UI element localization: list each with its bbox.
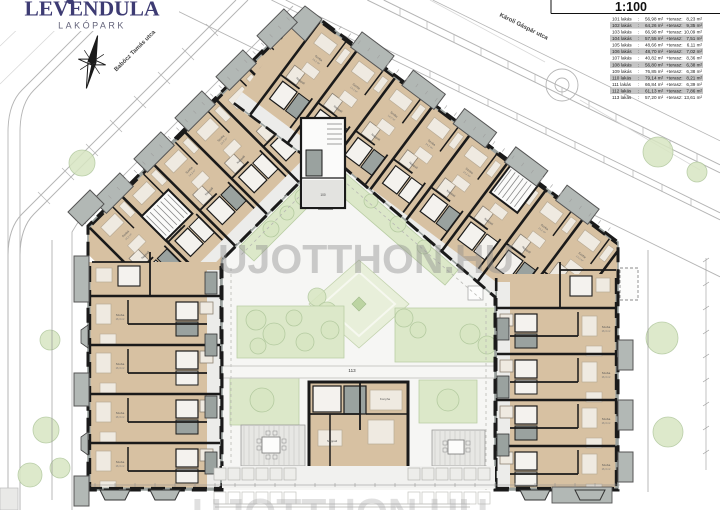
svg-text::: : xyxy=(638,82,639,87)
svg-text:Szoba: Szoba xyxy=(116,411,125,415)
svg-text:+terasz:: +terasz: xyxy=(666,62,682,67)
svg-text:8,23 m²: 8,23 m² xyxy=(686,16,702,21)
svg-text:7,02 m²: 7,02 m² xyxy=(686,49,702,54)
svg-text:6,38 m²: 6,38 m² xyxy=(686,62,702,67)
svg-text:48,66 m²: 48,66 m² xyxy=(645,43,664,48)
svg-text:16,3 m²: 16,3 m² xyxy=(116,415,125,419)
svg-text:9,35 m²: 9,35 m² xyxy=(686,23,702,28)
svg-text::: : xyxy=(638,95,639,100)
svg-text:UJOTTHON.HU: UJOTTHON.HU xyxy=(218,236,514,282)
svg-text::: : xyxy=(638,89,639,94)
svg-text:113: 113 xyxy=(348,368,356,373)
svg-text:8,21 m²: 8,21 m² xyxy=(686,75,702,80)
svg-text:+terasz:: +terasz: xyxy=(666,69,682,74)
svg-text:+terasz:: +terasz: xyxy=(666,82,682,87)
svg-text:66,84 m²: 66,84 m² xyxy=(645,82,664,87)
svg-text:107 lakás: 107 lakás xyxy=(612,56,632,61)
svg-text:111 lakás: 111 lakás xyxy=(612,82,632,87)
svg-text:+terasz:: +terasz: xyxy=(666,95,682,100)
svg-text:108 lakás: 108 lakás xyxy=(612,62,632,67)
svg-text:100: 100 xyxy=(320,193,326,197)
svg-text:102 lakás: 102 lakás xyxy=(612,23,632,28)
svg-text:Nappali: Nappali xyxy=(327,439,338,443)
svg-text:105 lakás: 105 lakás xyxy=(612,43,632,48)
svg-text:Szoba: Szoba xyxy=(602,463,611,467)
svg-text:101 lakás: 101 lakás xyxy=(612,16,632,21)
svg-text::: : xyxy=(638,69,639,74)
svg-text:103 lakás: 103 lakás xyxy=(612,30,632,35)
svg-text:+terasz:: +terasz: xyxy=(666,30,682,35)
svg-text::: : xyxy=(638,56,639,61)
svg-text:40,82 m²: 40,82 m² xyxy=(645,56,664,61)
svg-text:+terasz:: +terasz: xyxy=(666,56,682,61)
svg-text:+terasz:: +terasz: xyxy=(666,16,682,21)
svg-text:104 lakás: 104 lakás xyxy=(612,36,632,41)
svg-text:6,39 m²: 6,39 m² xyxy=(686,82,702,87)
svg-text:48,70 m²: 48,70 m² xyxy=(645,49,664,54)
svg-text:61,13 m²: 61,13 m² xyxy=(645,89,664,94)
svg-text:13,61 m²: 13,61 m² xyxy=(684,95,703,100)
svg-text:Szoba: Szoba xyxy=(116,460,125,464)
svg-text:16,3 m²: 16,3 m² xyxy=(602,329,611,333)
svg-text:Szoba: Szoba xyxy=(116,362,125,366)
svg-text:+terasz:: +terasz: xyxy=(666,89,682,94)
svg-text:16,3 m²: 16,3 m² xyxy=(602,467,611,471)
svg-text:+terasz:: +terasz: xyxy=(666,23,682,28)
svg-text:16,3 m²: 16,3 m² xyxy=(116,366,125,370)
svg-text:+terasz:: +terasz: xyxy=(666,36,682,41)
svg-text:7,51 m²: 7,51 m² xyxy=(686,36,702,41)
svg-text:106 lakás: 106 lakás xyxy=(612,49,632,54)
svg-text:Szoba: Szoba xyxy=(116,313,125,317)
svg-text::: : xyxy=(638,49,639,54)
svg-text:Szoba: Szoba xyxy=(602,417,611,421)
svg-text:+terasz:: +terasz: xyxy=(666,49,682,54)
svg-text:76,85 m²: 76,85 m² xyxy=(645,69,664,74)
svg-text::: : xyxy=(638,30,639,35)
svg-text:7,86 m²: 7,86 m² xyxy=(686,89,702,94)
svg-text:16,3 m²: 16,3 m² xyxy=(116,317,125,321)
svg-text:Konyha: Konyha xyxy=(380,397,391,401)
svg-text::: : xyxy=(638,75,639,80)
svg-text::: : xyxy=(638,36,639,41)
svg-text:109 lakás: 109 lakás xyxy=(612,69,632,74)
svg-text:110 lakás: 110 lakás xyxy=(612,75,632,80)
svg-text:8,36 m²: 8,36 m² xyxy=(686,56,702,61)
svg-text:1:100: 1:100 xyxy=(615,0,647,14)
svg-text::: : xyxy=(638,23,639,28)
svg-text::: : xyxy=(638,16,639,21)
svg-text:Szoba: Szoba xyxy=(602,371,611,375)
svg-text::: : xyxy=(638,43,639,48)
svg-text:16,3 m²: 16,3 m² xyxy=(116,464,125,468)
svg-text:57,55 m²: 57,55 m² xyxy=(645,36,664,41)
svg-text:16,3 m²: 16,3 m² xyxy=(602,421,611,425)
svg-text:56,98 m²: 56,98 m² xyxy=(645,16,664,21)
svg-text:Szoba: Szoba xyxy=(602,325,611,329)
svg-text:113 lakás: 113 lakás xyxy=(612,95,632,100)
svg-text:56,80 m²: 56,80 m² xyxy=(645,62,664,67)
svg-text:+terasz:: +terasz: xyxy=(666,43,682,48)
svg-text:LEVENDULA: LEVENDULA xyxy=(25,0,160,21)
svg-text:79,14 m²: 79,14 m² xyxy=(645,75,664,80)
svg-text:+terasz:: +terasz: xyxy=(666,75,682,80)
svg-text:57,20 m²: 57,20 m² xyxy=(645,95,664,100)
svg-text:6,11 m²: 6,11 m² xyxy=(687,43,703,48)
svg-text:UJOTTHON.HU: UJOTTHON.HU xyxy=(192,490,488,510)
svg-text:10,09 m²: 10,09 m² xyxy=(684,30,703,35)
svg-text:LAKÓPARK: LAKÓPARK xyxy=(58,21,126,31)
svg-text:64,26 m²: 64,26 m² xyxy=(645,23,664,28)
svg-text:66,98 m²: 66,98 m² xyxy=(645,30,664,35)
svg-text:6,38 m²: 6,38 m² xyxy=(686,69,702,74)
svg-text::: : xyxy=(638,62,639,67)
svg-text:112 lakás: 112 lakás xyxy=(612,89,632,94)
svg-text:16,3 m²: 16,3 m² xyxy=(602,375,611,379)
